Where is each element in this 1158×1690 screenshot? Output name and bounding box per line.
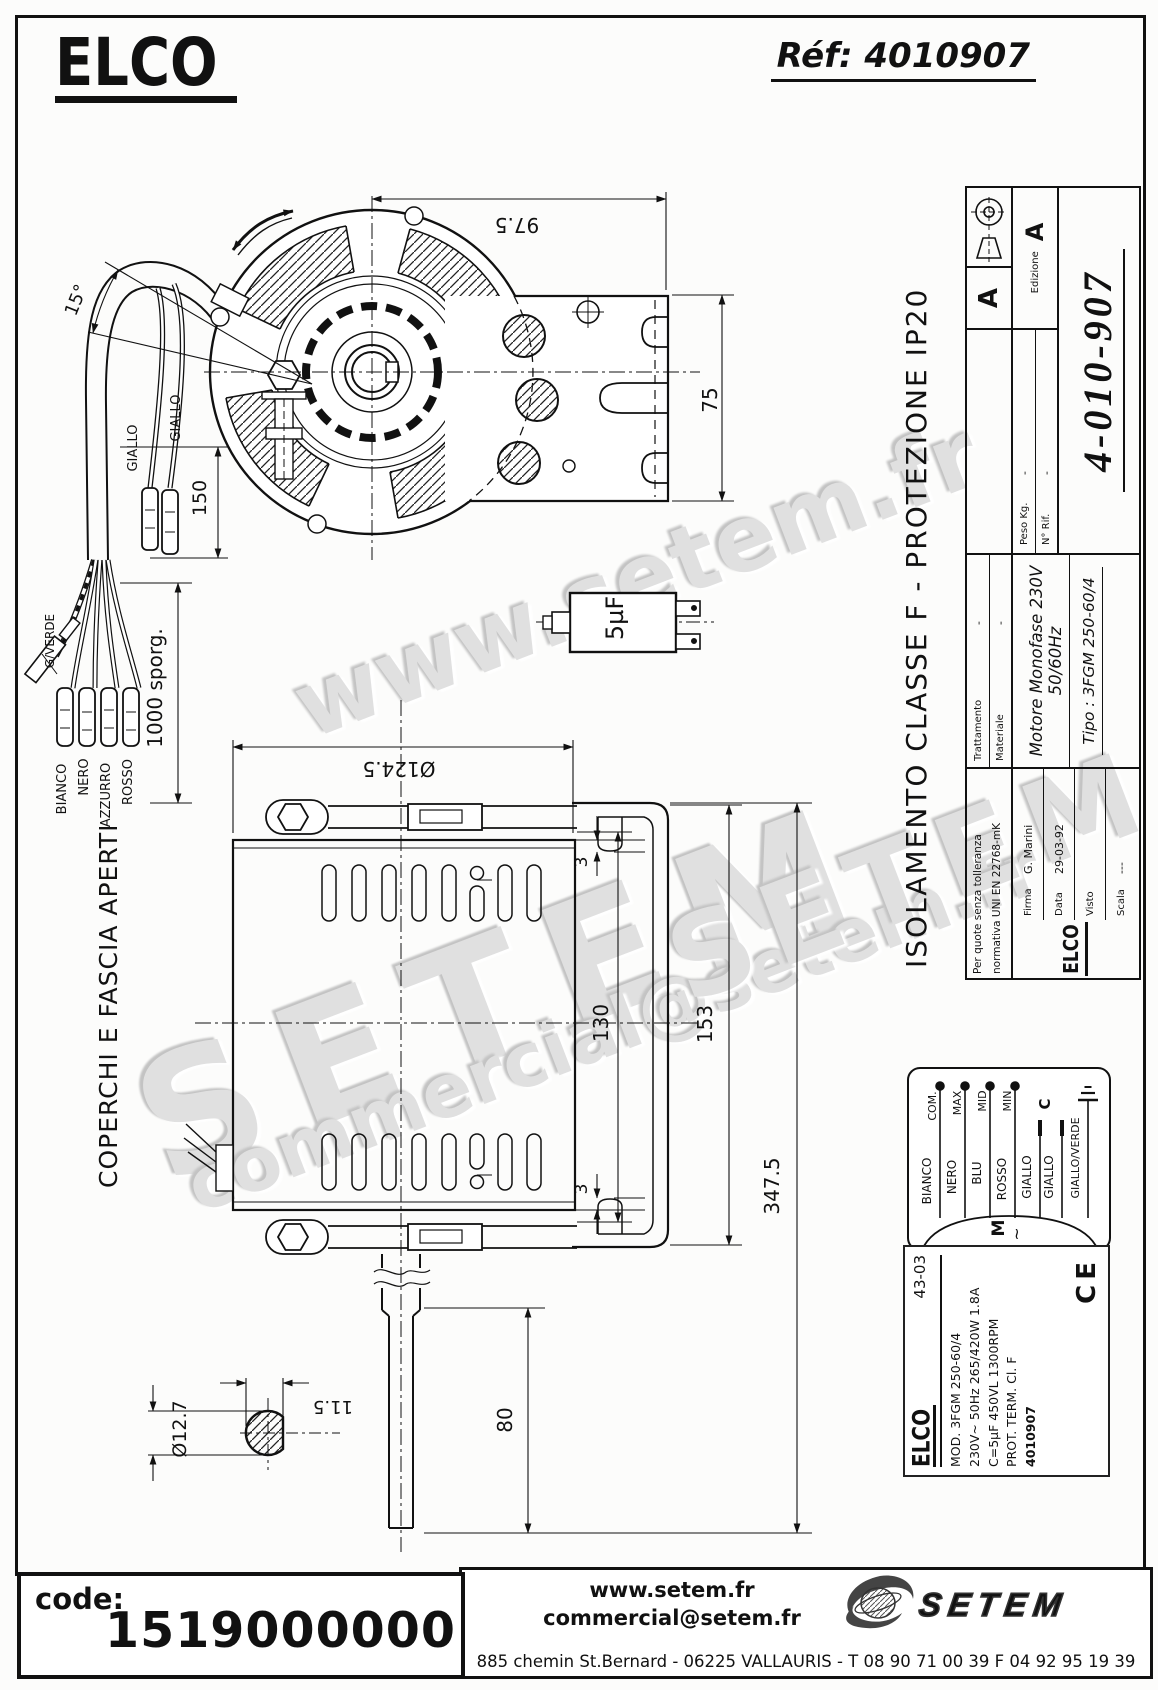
elco-logo: ELCO bbox=[55, 36, 237, 103]
side-view-note: COPERCHI E FASCIA APERTI bbox=[94, 842, 132, 1188]
firma-value: G. Marini bbox=[1022, 825, 1035, 874]
code-value: 1519000000 bbox=[105, 1602, 456, 1659]
rif-label: N° Rif. bbox=[1041, 475, 1052, 545]
ce-mark-icon: CE bbox=[1072, 1257, 1102, 1304]
edizione-value: A bbox=[1021, 223, 1049, 242]
setem-logo-text: SETEM bbox=[917, 1587, 1071, 1624]
projection-symbol-icon bbox=[967, 188, 1011, 266]
signature-table: Firma G. Marini Data 29-03-92 Visto Scal… bbox=[1013, 769, 1139, 920]
materiale-label: Materiale bbox=[995, 714, 1006, 761]
scala-value: --- bbox=[1115, 862, 1128, 874]
drawing-number-text: 4-010-907 bbox=[1074, 249, 1125, 492]
nameplate-code: 4010907 bbox=[1022, 1255, 1041, 1467]
peso-value: - bbox=[1018, 471, 1031, 475]
nameplate-capacitor: C=5µF 450VL 1300RPM bbox=[985, 1255, 1004, 1467]
tb-elco-logo-text: ELCO bbox=[1063, 924, 1083, 973]
materiale-value: - bbox=[994, 621, 1007, 625]
tb-elco-logo: ELCO bbox=[1013, 920, 1139, 978]
projection-symbol-svg bbox=[969, 190, 1009, 264]
footer-address: 885 chemin St.Bernard - 06225 VALLAURIS … bbox=[472, 1652, 1140, 1671]
motor-tipo-line: Tipo : 3FGM 250-60/4 bbox=[1070, 567, 1103, 754]
weight-ref: Peso Kg. - N° Rif. - bbox=[1013, 330, 1057, 553]
nameplate-electrical: 230V~ 50Hz 265/420W 1.8A bbox=[966, 1255, 985, 1467]
elco-logo-text: ELCO bbox=[55, 31, 218, 97]
title-block: Per quote senza tolleranza normativa UNI… bbox=[965, 186, 1141, 980]
trattamento-label: Trattamento bbox=[973, 700, 984, 761]
footer-contact: www.setem.fr commercial@setem.fr bbox=[492, 1576, 852, 1633]
drawing-number: 4-010-907 bbox=[1059, 188, 1139, 553]
data-label: Data bbox=[1054, 874, 1065, 920]
peso-label: Peso Kg. bbox=[1019, 475, 1030, 545]
nameplate-elco-text: ELCO bbox=[909, 1409, 933, 1467]
nameplate-date-code: 43-03 bbox=[911, 1255, 929, 1299]
footer-box: www.setem.fr commercial@setem.fr SETEM 8… bbox=[459, 1567, 1153, 1679]
tolerance-line-1: Per quote senza tolleranza bbox=[969, 774, 988, 974]
nameplate: ELCO 43-03 MOD. 3FGM 250-60/4 230V~ 50Hz… bbox=[903, 1245, 1110, 1477]
edition: Edizione A bbox=[1013, 188, 1057, 328]
tolerance-note: Per quote senza tolleranza normativa UNI… bbox=[969, 774, 1011, 974]
nameplate-protection: PROT. TERM. Cl. F bbox=[1003, 1255, 1022, 1467]
code-box: code: 1519000000 bbox=[17, 1572, 465, 1679]
tb-elco-logo-underline bbox=[1085, 922, 1088, 976]
scala-label: Scala bbox=[1116, 874, 1127, 920]
treatment-material: Trattamento - Materiale - bbox=[967, 555, 1011, 767]
nameplate-model: MOD. 3FGM 250-60/4 bbox=[947, 1255, 966, 1467]
trattamento-value: - bbox=[972, 621, 985, 625]
motor-description: Motore Monofase 230V 50/60Hz Tipo : 3FGM… bbox=[1013, 555, 1139, 767]
edizione-label: Edizione bbox=[1030, 251, 1041, 293]
setem-logo: SETEM bbox=[840, 1572, 1140, 1634]
nameplate-elco-logo: ELCO bbox=[911, 1405, 936, 1467]
firma-label: Firma bbox=[1023, 874, 1034, 920]
motor-desc-line: Motore Monofase 230V 50/60Hz bbox=[1027, 555, 1070, 767]
nameplate-header: ELCO 43-03 bbox=[911, 1255, 942, 1467]
insulation-class-line: ISOLAMENTO CLASSE F - PROTEZIONE IP20 bbox=[900, 170, 952, 968]
rif-value: - bbox=[1040, 471, 1053, 475]
tolerance-line-2: normativa UNI EN 22768-mK bbox=[988, 774, 1007, 974]
revision-letter: A bbox=[967, 268, 1011, 328]
footer-email: commercial@setem.fr bbox=[492, 1604, 852, 1632]
reference-number: Réf: 4010907 bbox=[771, 36, 1036, 82]
footer-site: www.setem.fr bbox=[492, 1576, 852, 1604]
setem-swoosh-icon bbox=[846, 1576, 913, 1629]
visto-label: Visto bbox=[1085, 874, 1096, 920]
data-value: 29-03-92 bbox=[1053, 824, 1066, 874]
